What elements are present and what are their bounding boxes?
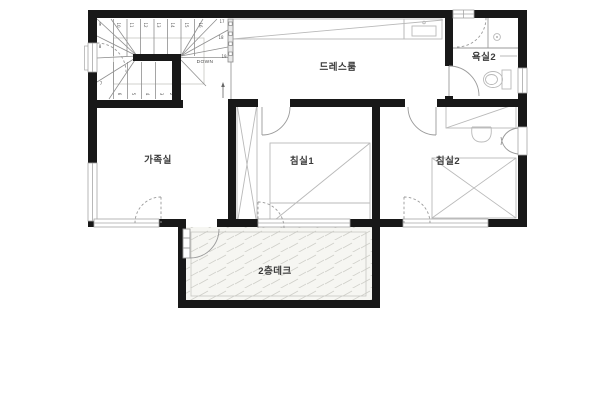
svg-text:9: 9 <box>99 22 102 27</box>
window-bedroom1-bottom <box>258 219 350 227</box>
svg-text:8: 8 <box>99 44 102 49</box>
svg-text:14: 14 <box>170 22 175 28</box>
window-bedroom2-bottom <box>403 219 488 227</box>
shower-drain-icon <box>494 34 501 41</box>
svg-text:17: 17 <box>219 19 225 24</box>
stair-winders-right <box>181 19 228 86</box>
svg-text:15: 15 <box>184 22 189 28</box>
stair-direction-arrow-icon <box>221 82 225 98</box>
svg-text:5: 5 <box>131 93 136 96</box>
svg-text:18: 18 <box>218 35 224 40</box>
floor-plan-page: 10 11 12 13 14 15 16 17 18 19 6 5 4 3 2 … <box>0 0 610 405</box>
svg-text:3: 3 <box>159 93 164 96</box>
window-family-bottom <box>94 219 159 227</box>
room-label-dress-room: 드레스룸 <box>320 61 357 73</box>
stair-railing <box>228 19 233 99</box>
closet-symbol <box>233 19 443 39</box>
svg-text:11: 11 <box>129 22 134 28</box>
casement-swing-arc <box>501 137 518 154</box>
toilet-icon <box>484 70 512 89</box>
wardrobe-symbol <box>237 104 257 225</box>
svg-text:4: 4 <box>145 93 150 96</box>
bed2-symbol <box>432 158 516 218</box>
svg-text:13: 13 <box>156 22 161 28</box>
deck-surface <box>186 227 372 300</box>
window-family-left <box>88 163 97 221</box>
shower-area <box>445 18 518 56</box>
bed1-symbol <box>270 143 370 224</box>
door-bedroom1 <box>262 107 290 135</box>
svg-text:6: 6 <box>117 93 122 96</box>
svg-text:19: 19 <box>221 54 227 59</box>
room-label-bedroom-2: 침실2 <box>436 155 460 167</box>
windows-layer <box>85 10 528 227</box>
window-bedroom2-right <box>501 127 527 155</box>
deck-hatch-pattern <box>186 227 372 300</box>
svg-text:12: 12 <box>143 22 148 28</box>
casement-swing-arc <box>501 128 518 145</box>
stairs-down-label: DOWN <box>197 59 214 65</box>
window-bathroom-top <box>453 10 474 18</box>
desk-symbol <box>446 104 516 128</box>
window-bathroom-right <box>518 68 527 93</box>
room-label-deck: 2층데크 <box>258 265 292 277</box>
floor-plan-drawing: 10 11 12 13 14 15 16 17 18 19 6 5 4 3 2 … <box>0 0 610 405</box>
svg-text:7: 7 <box>100 81 103 86</box>
room-label-bedroom-1: 침실1 <box>290 155 314 167</box>
shower-door-swing <box>457 18 486 47</box>
room-label-family-room: 가족실 <box>144 154 172 166</box>
svg-text:16: 16 <box>198 22 203 28</box>
chair-symbol <box>472 127 492 142</box>
stair-winders-left <box>97 19 137 99</box>
door-bathroom2 <box>449 66 479 96</box>
room-label-bathroom-2: 욕실2 <box>472 51 496 63</box>
svg-text:10: 10 <box>116 22 121 28</box>
door-bedroom2 <box>408 107 436 135</box>
